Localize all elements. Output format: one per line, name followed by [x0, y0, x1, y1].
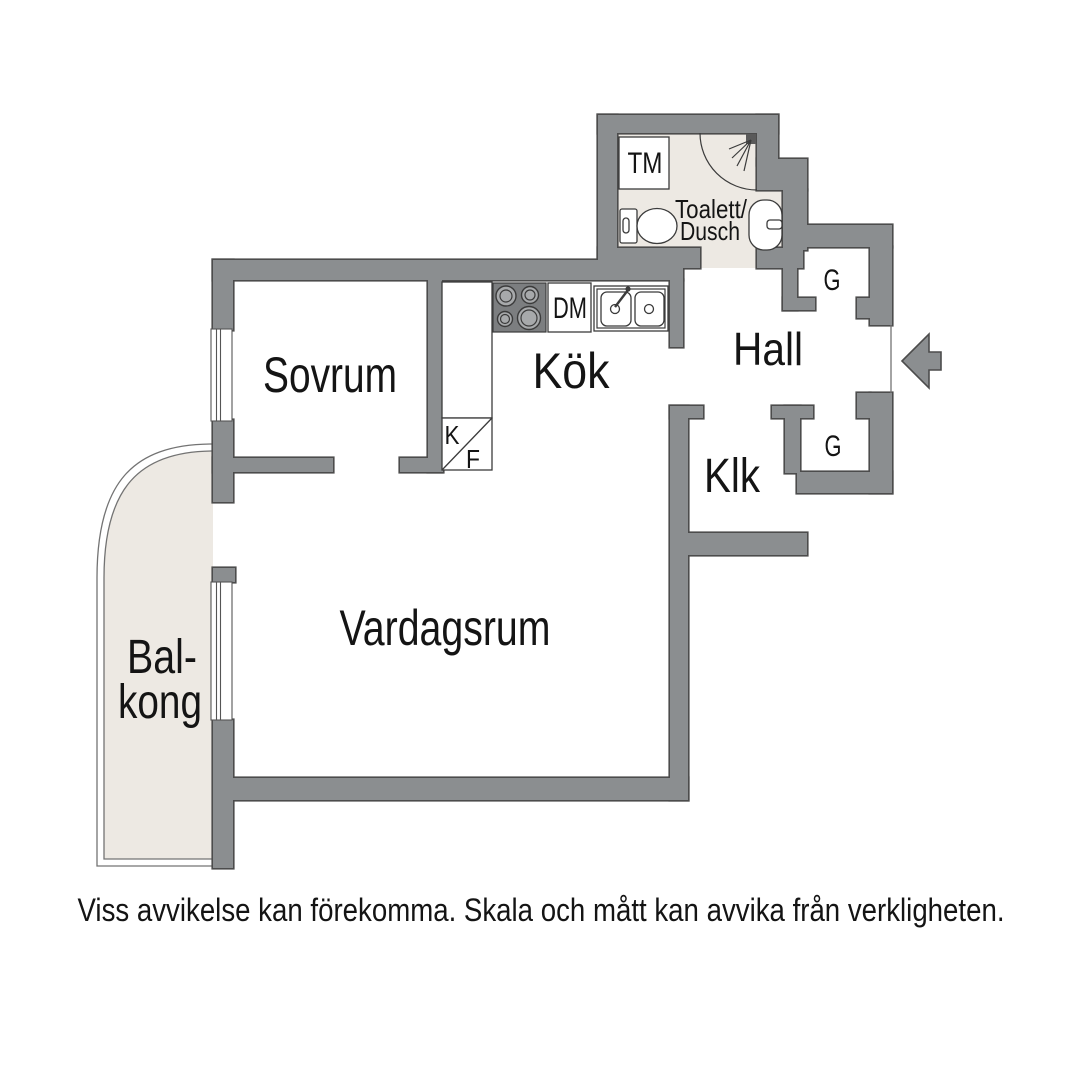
room-label-sovrum: Sovrum	[263, 347, 397, 403]
fridge-label: K	[445, 420, 461, 450]
walls	[213, 115, 892, 868]
floorplan-drawing: K F DM TM	[0, 0, 1080, 1080]
kitchen-sink-icon	[594, 286, 668, 331]
room-label-klk: Klk	[704, 450, 761, 503]
room-label-hall: Hall	[733, 323, 803, 375]
bedroom-window	[211, 329, 232, 421]
room-label-toalett-line2: Dusch	[680, 216, 740, 246]
freezer-label: F	[466, 444, 480, 474]
room-label-balkong-line2: kong	[118, 676, 202, 729]
disclaimer-text: Viss avvikelse kan förekomma. Skala och …	[78, 892, 1005, 928]
room-label-vardagsrum: Vardagsrum	[340, 600, 551, 656]
closet-label-g-bottom: G	[825, 430, 842, 463]
closet-label-g-top: G	[824, 264, 841, 297]
dishwasher-icon: DM	[548, 283, 591, 332]
bathroom-sink-icon	[749, 200, 782, 250]
fridge-freezer-unit: K F	[442, 418, 492, 474]
dishwasher-label: DM	[553, 292, 587, 325]
balcony-door-window	[211, 582, 232, 720]
washing-machine-label: TM	[628, 147, 663, 180]
washing-machine-icon: TM	[619, 137, 669, 189]
toilet-icon	[620, 209, 677, 244]
entrance-arrow	[902, 334, 941, 388]
room-label-kok: Kök	[533, 343, 611, 399]
kitchen-counter	[442, 282, 492, 418]
stove-icon	[493, 283, 546, 332]
floorplan-page: K F DM TM	[0, 0, 1080, 1080]
